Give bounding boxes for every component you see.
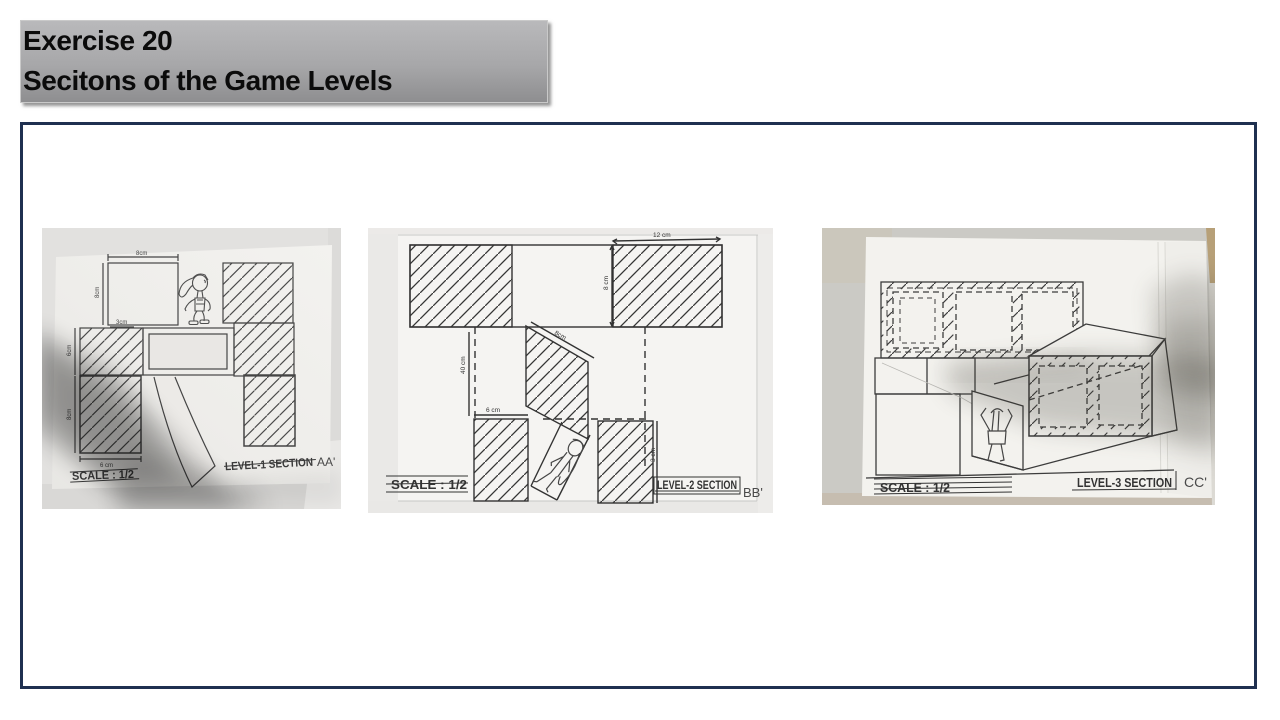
svg-text:8cm: 8cm: [95, 287, 101, 298]
svg-text:8cm: 8cm: [136, 251, 147, 257]
svg-text:6 cm: 6 cm: [486, 407, 500, 414]
svg-text:SCALE : 1/2: SCALE : 1/2: [391, 477, 467, 492]
svg-text:3 cm: 3 cm: [650, 448, 657, 462]
svg-text:LEVEL-3 SECTION: LEVEL-3 SECTION: [1077, 475, 1172, 490]
svg-text:LEVEL-2 SECTION: LEVEL-2 SECTION: [657, 480, 737, 492]
svg-text:8 cm: 8 cm: [603, 276, 610, 290]
svg-text:SCALE : 1/2: SCALE : 1/2: [880, 481, 950, 495]
svg-text:CC': CC': [1184, 474, 1207, 490]
svg-text:3cm: 3cm: [116, 320, 127, 326]
svg-text:40 cm: 40 cm: [460, 356, 467, 374]
svg-text:AA': AA': [317, 455, 335, 469]
svg-text:BB': BB': [743, 485, 763, 500]
svg-text:12 cm: 12 cm: [653, 232, 671, 239]
